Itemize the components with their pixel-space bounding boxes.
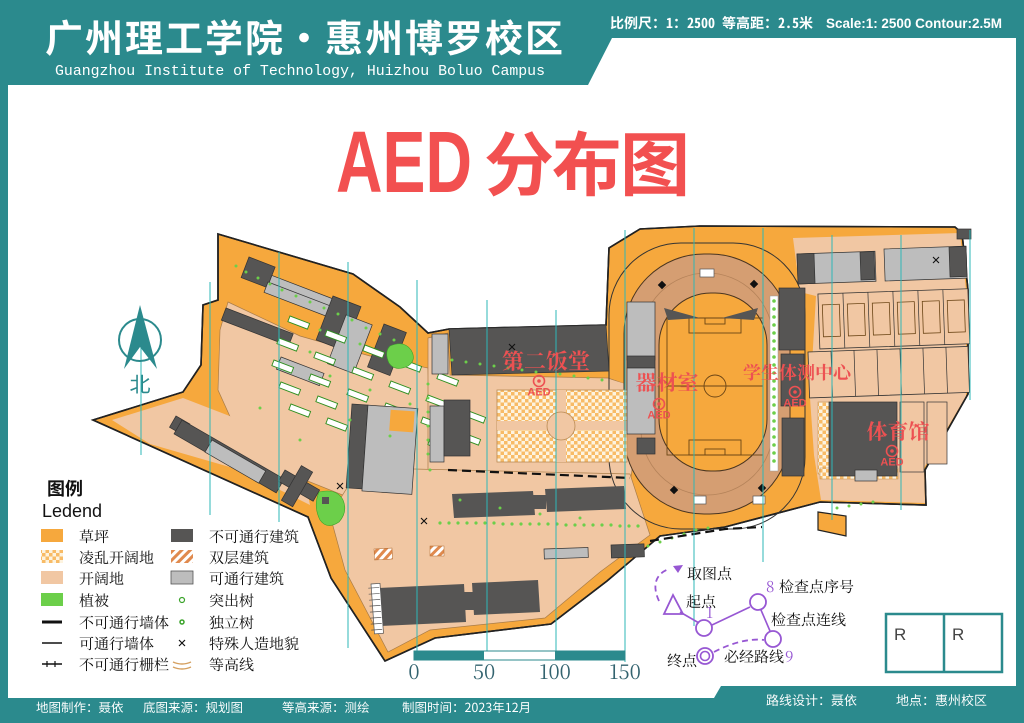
svg-text:R: R [952, 625, 964, 644]
svg-text:R: R [894, 625, 906, 644]
svg-text:AED: AED [880, 457, 903, 469]
svg-text:AED: AED [647, 410, 670, 422]
svg-text:Guangzhou Institute of Technol: Guangzhou Institute of Technology, Huizh… [55, 64, 545, 80]
svg-text:Scale:1: 2500 Contour:2.5M: Scale:1: 2500 Contour:2.5M [826, 15, 1002, 31]
svg-text:AED: AED [783, 398, 806, 410]
svg-text:AED: AED [527, 387, 550, 399]
svg-text:AED: AED [336, 114, 472, 211]
svg-text:Ledend: Ledend [42, 501, 102, 521]
